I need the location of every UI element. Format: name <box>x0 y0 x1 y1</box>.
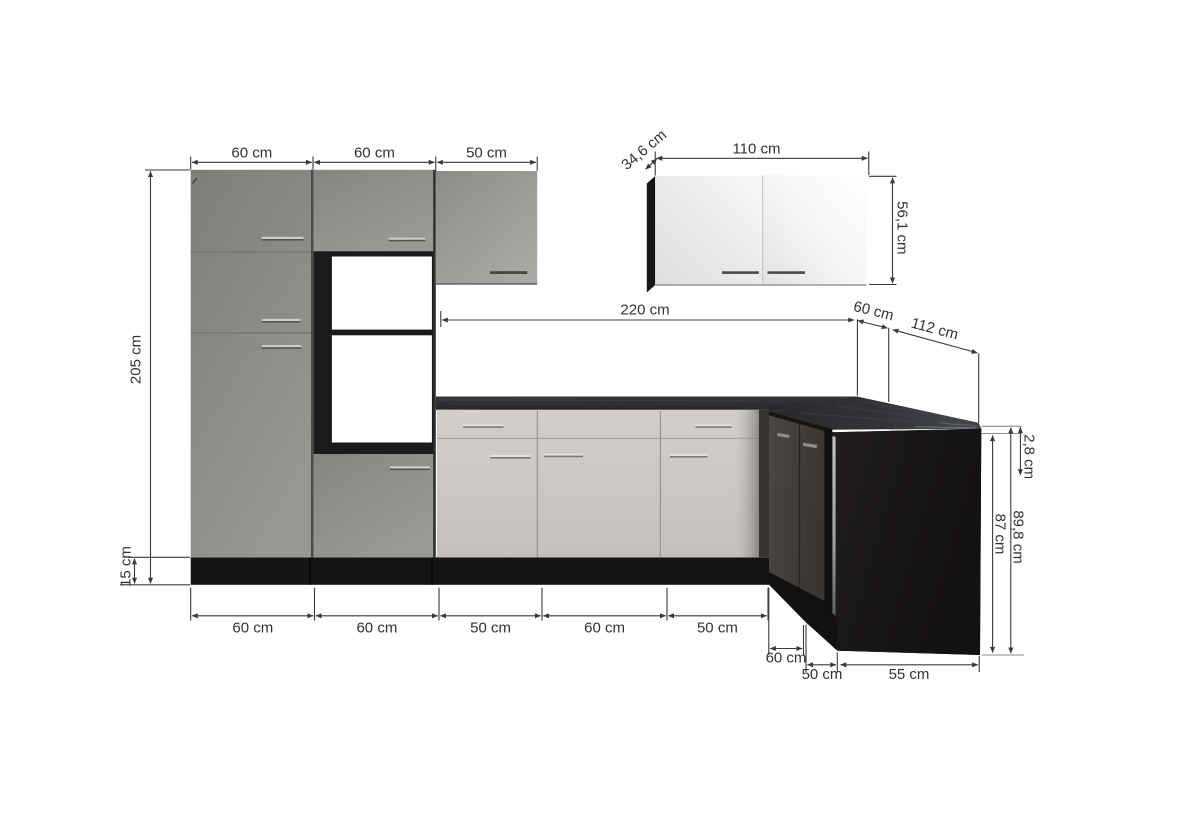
svg-text:15 cm: 15 cm <box>118 546 135 587</box>
svg-text:2,8 cm: 2,8 cm <box>1021 434 1038 479</box>
svg-text:56,1 cm: 56,1 cm <box>894 201 911 254</box>
svg-text:60 cm: 60 cm <box>584 620 625 637</box>
svg-text:220 cm: 220 cm <box>620 302 669 319</box>
svg-text:60 cm: 60 cm <box>231 145 272 162</box>
svg-text:50 cm: 50 cm <box>470 620 511 637</box>
svg-text:110 cm: 110 cm <box>732 140 780 157</box>
svg-text:60 cm: 60 cm <box>356 620 397 637</box>
svg-text:60 cm: 60 cm <box>354 145 395 162</box>
svg-text:60 cm: 60 cm <box>766 650 807 667</box>
svg-text:60 cm: 60 cm <box>232 620 273 637</box>
svg-text:50 cm: 50 cm <box>697 620 738 637</box>
svg-text:89,8 cm: 89,8 cm <box>1010 510 1027 563</box>
svg-text:55 cm: 55 cm <box>889 666 930 683</box>
svg-text:205 cm: 205 cm <box>127 335 144 384</box>
svg-text:87 cm: 87 cm <box>992 514 1009 555</box>
svg-text:50 cm: 50 cm <box>466 145 507 162</box>
svg-text:50 cm: 50 cm <box>802 666 843 683</box>
